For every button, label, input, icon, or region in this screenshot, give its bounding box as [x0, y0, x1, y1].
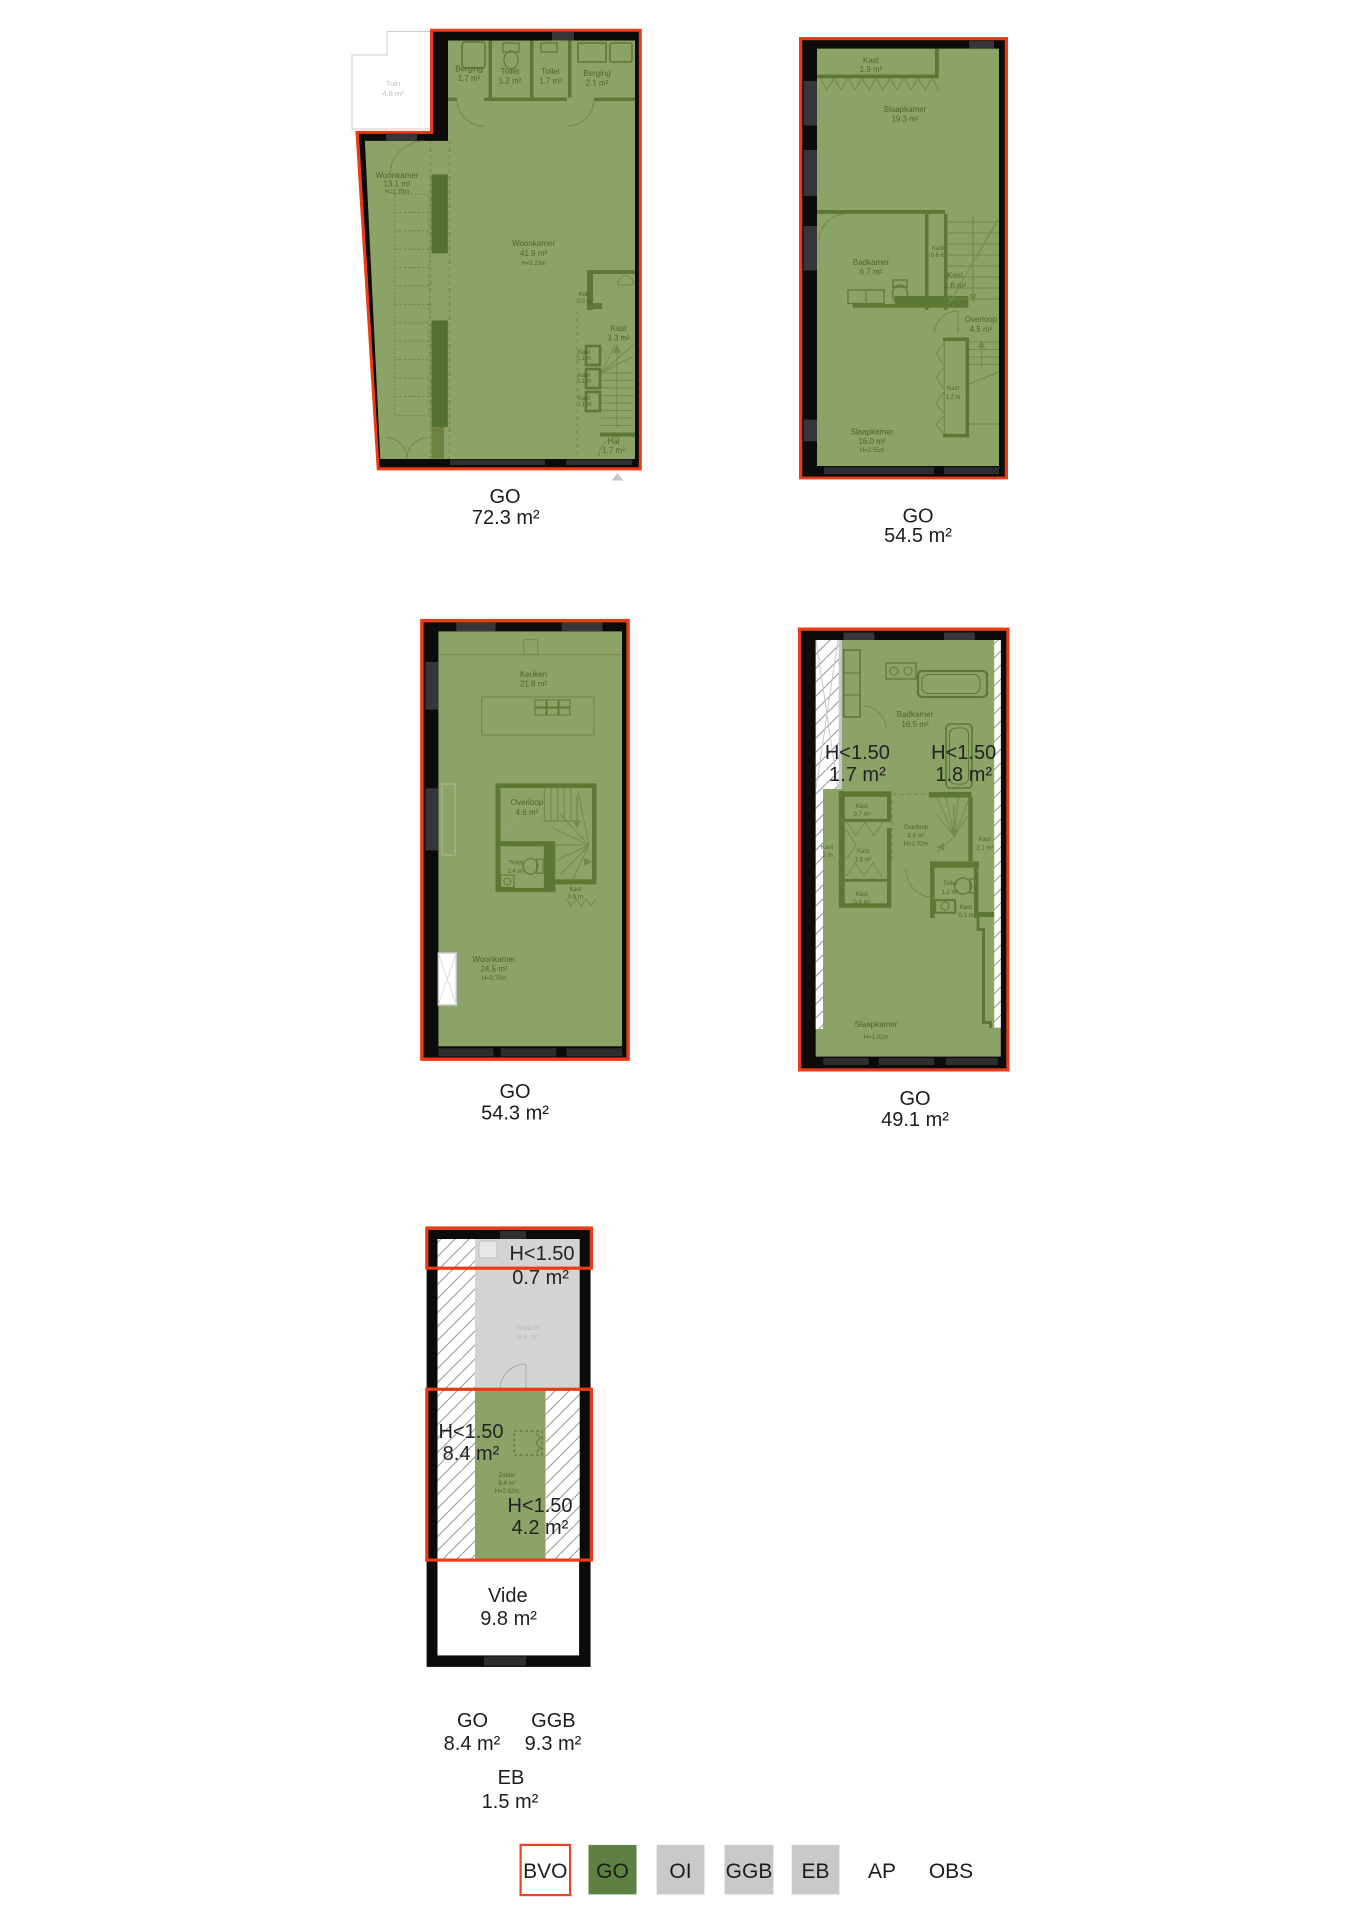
svg-text:24.5 m²: 24.5 m²: [480, 965, 507, 974]
svg-text:8.4 m²: 8.4 m²: [444, 1733, 501, 1755]
svg-text:Vide: Vide: [488, 1585, 528, 1607]
svg-text:2.1 m²: 2.1 m²: [976, 846, 993, 852]
svg-text:Kdh: Kdh: [579, 292, 590, 298]
svg-text:Kast: Kast: [821, 845, 833, 851]
svg-text:Kast: Kast: [947, 271, 964, 280]
svg-text:8.4 m²: 8.4 m²: [498, 1481, 515, 1487]
svg-text:H<1.50: H<1.50: [931, 742, 996, 764]
svg-text:1.9 m²: 1.9 m²: [860, 65, 883, 74]
svg-text:Overloop: Overloop: [965, 315, 998, 324]
svg-text:GO: GO: [596, 1860, 629, 1883]
svg-text:Kast: Kast: [569, 887, 581, 893]
svg-text:Overloop: Overloop: [511, 798, 544, 807]
svg-text:49.1 m²: 49.1 m²: [881, 1109, 949, 1131]
svg-text:H<1.50: H<1.50: [507, 1495, 572, 1517]
svg-text:1.7 m²: 1.7 m²: [602, 446, 625, 455]
svg-text:1.6 m²: 1.6 m²: [944, 281, 967, 290]
svg-text:Kast: Kast: [857, 849, 869, 855]
svg-text:Kast: Kast: [863, 56, 880, 65]
svg-text:Berging: Berging: [583, 69, 611, 78]
svg-text:0,1 m: 0,1 m: [576, 379, 591, 385]
svg-text:0.1 m: 0.1 m: [958, 913, 973, 919]
svg-text:41.9 m²: 41.9 m²: [520, 249, 547, 258]
svg-text:1.7 m²: 1.7 m²: [458, 74, 481, 83]
svg-text:1.7 m²: 1.7 m²: [829, 764, 886, 786]
svg-text:H<1.50: H<1.50: [509, 1243, 574, 1265]
svg-text:GO: GO: [457, 1710, 488, 1732]
svg-text:1.2 m: 1.2 m: [945, 395, 960, 401]
svg-text:GO: GO: [489, 486, 520, 508]
svg-text:1.7 m²: 1.7 m²: [539, 77, 562, 86]
svg-text:0.6 m²: 0.6 m²: [853, 900, 870, 906]
svg-text:GO: GO: [499, 1081, 530, 1103]
svg-text:1.8 m²: 1.8 m²: [854, 858, 871, 864]
svg-text:Balkon: Balkon: [517, 1323, 540, 1332]
svg-text:Kast: Kast: [979, 837, 991, 843]
svg-text:Zolder: Zolder: [498, 1473, 515, 1479]
svg-text:H=1.02m: H=1.02m: [864, 1035, 889, 1041]
svg-text:0.7 m²: 0.7 m²: [853, 812, 870, 818]
svg-text:9.8 m²: 9.8 m²: [480, 1608, 537, 1630]
svg-text:Kast: Kast: [856, 804, 868, 810]
svg-text:Overloop: Overloop: [904, 825, 929, 831]
svg-text:Slaapkamer: Slaapkamer: [855, 1020, 898, 1029]
svg-text:GGB: GGB: [726, 1860, 773, 1883]
svg-text:4.6 m²: 4.6 m²: [516, 808, 539, 817]
svg-text:Kast: Kast: [960, 905, 972, 911]
svg-text:Kast: Kast: [947, 386, 959, 392]
svg-text:0.6 m: 0.6 m: [930, 253, 945, 259]
svg-text:0,1 m: 0,1 m: [576, 356, 591, 362]
svg-text:0,1 m: 0,1 m: [576, 402, 591, 408]
svg-text:4.2 m²: 4.2 m²: [512, 1517, 569, 1539]
svg-text:Berging: Berging: [455, 65, 483, 74]
svg-text:Kast: Kast: [856, 892, 868, 898]
svg-text:GO: GO: [899, 1088, 930, 1110]
svg-text:Woonkamer: Woonkamer: [512, 239, 555, 248]
svg-text:4.5 m²: 4.5 m²: [970, 325, 993, 334]
svg-text:0.7 m²: 0.7 m²: [512, 1267, 569, 1289]
svg-text:1.2 m²: 1.2 m²: [499, 77, 522, 86]
svg-text:OI: OI: [669, 1860, 691, 1883]
svg-text:H=2.02m: H=2.02m: [904, 842, 929, 848]
svg-text:16.5 m²: 16.5 m²: [901, 720, 928, 729]
svg-text:16.0 m²: 16.0 m²: [858, 437, 885, 446]
svg-text:8.4 m²: 8.4 m²: [443, 1443, 500, 1465]
svg-text:H=2.55m: H=2.55m: [860, 448, 885, 454]
svg-text:54.3 m²: 54.3 m²: [481, 1103, 549, 1125]
svg-text:Toilet: Toilet: [943, 881, 957, 887]
svg-text:EB: EB: [498, 1767, 525, 1789]
svg-text:19.3 m²: 19.3 m²: [891, 115, 918, 124]
svg-text:72.3 m²: 72.3 m²: [472, 507, 540, 529]
svg-text:H=2.70m: H=2.70m: [482, 976, 507, 982]
svg-text:1.8 m²: 1.8 m²: [935, 764, 992, 786]
svg-text:21.8 m²: 21.8 m²: [520, 680, 547, 689]
svg-text:2.1 m²: 2.1 m²: [586, 79, 609, 88]
svg-text:6.7 m²: 6.7 m²: [860, 268, 883, 277]
svg-text:3.3 m²: 3.3 m²: [607, 334, 630, 343]
svg-text:0,0 m: 0,0 m: [576, 299, 591, 305]
svg-text:BVO: BVO: [523, 1860, 567, 1883]
svg-text:1.2 m²: 1.2 m²: [941, 890, 958, 896]
svg-text:Keuken: Keuken: [520, 670, 547, 679]
svg-text:H=3.23m: H=3.23m: [521, 261, 546, 267]
svg-text:Slaapkamer: Slaapkamer: [851, 428, 894, 437]
svg-text:.2 m: .2 m: [821, 853, 833, 859]
svg-text:4.8 m²: 4.8 m²: [382, 89, 404, 98]
svg-text:Badkamer: Badkamer: [853, 258, 890, 267]
svg-text:Kast: Kast: [610, 324, 627, 333]
svg-text:OBS: OBS: [929, 1860, 973, 1883]
svg-text:Hal: Hal: [607, 437, 619, 446]
svg-text:H=2.70m: H=2.70m: [385, 190, 410, 196]
svg-text:Kast: Kast: [932, 246, 944, 252]
svg-text:Toilet: Toilet: [541, 67, 560, 76]
svg-text:AP: AP: [868, 1860, 896, 1883]
svg-text:GGB: GGB: [531, 1710, 575, 1732]
svg-text:9.3 m²: 9.3 m²: [525, 1733, 582, 1755]
svg-text:Woonkamer: Woonkamer: [473, 955, 516, 964]
svg-text:Tuin: Tuin: [386, 79, 400, 88]
svg-text:1.5 m²: 1.5 m²: [482, 1791, 539, 1813]
svg-text:H<1.50: H<1.50: [825, 742, 890, 764]
svg-text:8.9 m²: 8.9 m²: [517, 1332, 539, 1341]
svg-text:1.4 m²: 1.4 m²: [507, 869, 524, 875]
svg-text:Toilet: Toilet: [509, 861, 523, 867]
svg-text:Toilet: Toilet: [501, 67, 520, 76]
svg-text:Slaapkamer: Slaapkamer: [884, 105, 927, 114]
svg-text:4.8 m²: 4.8 m²: [907, 834, 924, 840]
svg-text:H<1.50: H<1.50: [438, 1421, 503, 1443]
svg-text:Badkamer: Badkamer: [897, 710, 934, 719]
svg-text:13.1 m²: 13.1 m²: [383, 180, 410, 189]
svg-text:EB: EB: [801, 1860, 829, 1883]
svg-text:54.5 m²: 54.5 m²: [884, 525, 952, 547]
